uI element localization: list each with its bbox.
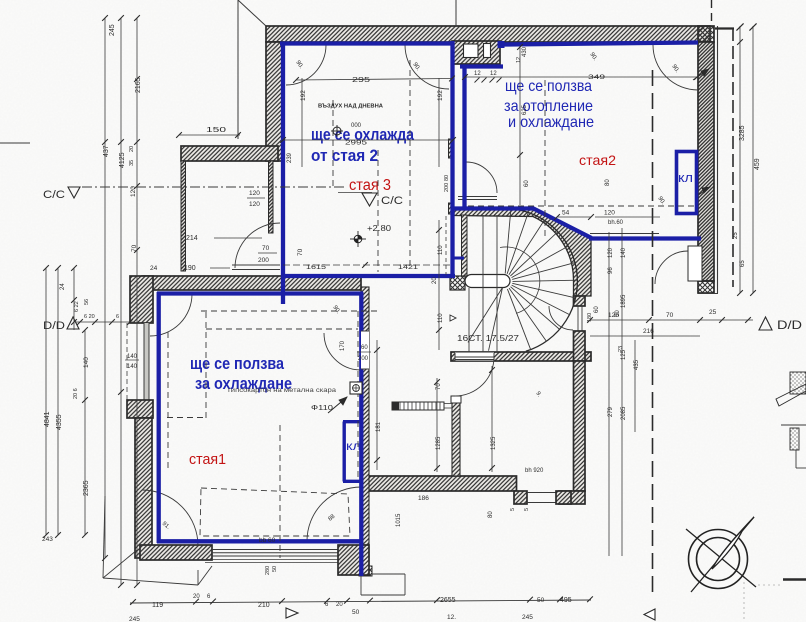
svg-text:20 6: 20 6 (73, 388, 79, 399)
svg-text:437: 437 (103, 145, 110, 157)
svg-text:245: 245 (109, 24, 116, 36)
svg-text:и охлаждане: и охлаждане (508, 114, 594, 131)
svg-text:5: 5 (524, 508, 530, 511)
svg-text:2165: 2165 (135, 77, 142, 93)
svg-text:120: 120 (608, 247, 614, 258)
svg-text:12: 12 (474, 71, 481, 77)
svg-text:80: 80 (488, 511, 494, 518)
svg-text:119: 119 (152, 602, 163, 609)
svg-text:186: 186 (418, 495, 429, 502)
svg-text:200: 200 (358, 356, 369, 362)
svg-text:4125: 4125 (119, 152, 126, 168)
svg-text:12: 12 (516, 57, 522, 63)
svg-text:459: 459 (754, 158, 761, 170)
svg-text:23: 23 (618, 346, 624, 352)
svg-text:стая1: стая1 (189, 452, 226, 468)
svg-text:200: 200 (444, 183, 450, 192)
svg-text:Ф110: Ф110 (311, 403, 333, 412)
svg-text:170: 170 (340, 340, 346, 351)
svg-text:кл: кл (346, 439, 361, 453)
svg-text:190: 190 (184, 265, 196, 272)
svg-text:12.: 12. (447, 614, 456, 621)
svg-text:от стая 2: от стая 2 (311, 147, 378, 165)
svg-text:245: 245 (129, 616, 140, 622)
svg-text:ще се ползва: ще се ползва (505, 78, 592, 95)
svg-text:96: 96 (608, 267, 614, 274)
svg-text:50: 50 (615, 310, 621, 317)
svg-text:80: 80 (605, 179, 611, 186)
svg-text:349: 349 (588, 74, 606, 81)
svg-text:20: 20 (432, 277, 438, 284)
svg-text:bh.60: bh.60 (608, 220, 624, 226)
svg-text:192: 192 (300, 90, 307, 101)
svg-text:54: 54 (562, 210, 570, 217)
svg-text:6: 6 (116, 314, 119, 320)
svg-text:56: 56 (84, 299, 90, 305)
svg-text:243: 243 (42, 536, 53, 543)
svg-text:245: 245 (522, 614, 533, 621)
svg-text:120: 120 (604, 210, 615, 217)
svg-text:140: 140 (127, 364, 138, 370)
svg-text:стая2: стая2 (579, 152, 616, 168)
svg-text:50: 50 (352, 609, 360, 616)
svg-text:16СТ. 17.5/27: 16СТ. 17.5/27 (457, 334, 519, 343)
svg-text:2085: 2085 (621, 406, 627, 420)
svg-text:430: 430 (522, 46, 528, 57)
svg-text:625: 625 (522, 104, 528, 115)
svg-text:239: 239 (287, 152, 293, 163)
svg-text:12: 12 (490, 71, 497, 77)
svg-text:435: 435 (634, 359, 640, 370)
svg-text:24: 24 (150, 265, 158, 272)
svg-text:6 22: 6 22 (74, 301, 80, 312)
svg-text:295: 295 (352, 77, 370, 84)
svg-text:181: 181 (376, 421, 382, 432)
svg-text:20: 20 (129, 146, 135, 152)
svg-text:180: 180 (587, 313, 593, 322)
svg-text:140: 140 (127, 354, 138, 360)
svg-text:+2.80: +2.80 (367, 224, 392, 233)
svg-text:1421: 1421 (398, 264, 419, 271)
svg-text:192: 192 (437, 90, 444, 101)
svg-text:150: 150 (206, 125, 226, 134)
svg-text:80: 80 (444, 175, 450, 181)
svg-text:bb 60: bb 60 (259, 537, 276, 544)
svg-text:279: 279 (608, 406, 614, 417)
svg-text:280: 280 (265, 566, 271, 575)
svg-text:1615: 1615 (306, 264, 327, 271)
svg-text:стая 3: стая 3 (349, 177, 391, 194)
svg-text:210: 210 (258, 602, 270, 609)
svg-text:6 20: 6 20 (84, 314, 95, 320)
svg-text:70: 70 (131, 244, 138, 252)
svg-text:60: 60 (594, 306, 600, 313)
svg-text:5: 5 (510, 508, 516, 511)
svg-text:70: 70 (666, 312, 674, 319)
svg-text:25: 25 (709, 309, 717, 316)
svg-text:ще се ползва: ще се ползва (190, 355, 285, 373)
svg-text:120: 120 (249, 201, 260, 208)
svg-text:140: 140 (83, 357, 90, 368)
svg-text:70: 70 (262, 245, 270, 252)
svg-text:214: 214 (186, 235, 198, 242)
svg-text:70: 70 (297, 248, 304, 256)
svg-text:С/С: С/С (43, 189, 65, 201)
svg-text:120: 120 (130, 186, 137, 197)
svg-text:495: 495 (560, 597, 572, 604)
svg-text:20: 20 (193, 594, 200, 600)
svg-text:110: 110 (438, 313, 444, 323)
svg-text:50: 50 (537, 597, 545, 604)
svg-text:25: 25 (733, 232, 739, 239)
svg-text:гипсокартон на метална скара: гипсокартон на метална скара (228, 387, 337, 394)
svg-text:000: 000 (351, 123, 362, 129)
svg-text:65: 65 (740, 260, 746, 267)
svg-text:60: 60 (524, 180, 530, 187)
svg-text:60: 60 (361, 345, 368, 351)
svg-text:20: 20 (336, 602, 343, 608)
svg-text:3285: 3285 (739, 125, 746, 141)
svg-text:120: 120 (249, 190, 260, 197)
svg-text:35: 35 (129, 160, 135, 166)
svg-text:1015: 1015 (396, 513, 402, 527)
svg-text:4355: 4355 (56, 414, 63, 430)
svg-text:24: 24 (60, 283, 66, 290)
svg-text:bh 920: bh 920 (525, 468, 544, 474)
svg-text:140: 140 (621, 247, 627, 258)
svg-text:за отопление: за отопление (504, 98, 593, 115)
svg-text:4841: 4841 (44, 411, 51, 427)
svg-text:1895: 1895 (621, 294, 627, 308)
svg-text:С/С: С/С (381, 195, 403, 207)
svg-text:ВЪЗДУХ НАД ДНЕВНА: ВЪЗДУХ НАД ДНЕВНА (318, 104, 384, 110)
svg-text:200: 200 (258, 257, 269, 264)
svg-text:50: 50 (272, 566, 278, 572)
svg-text:D/D: D/D (777, 318, 802, 332)
svg-text:2365: 2365 (83, 480, 90, 496)
svg-text:2995: 2995 (345, 140, 368, 147)
svg-text:2655: 2655 (440, 597, 456, 604)
svg-text:110: 110 (438, 245, 444, 255)
svg-text:кл: кл (678, 170, 693, 185)
